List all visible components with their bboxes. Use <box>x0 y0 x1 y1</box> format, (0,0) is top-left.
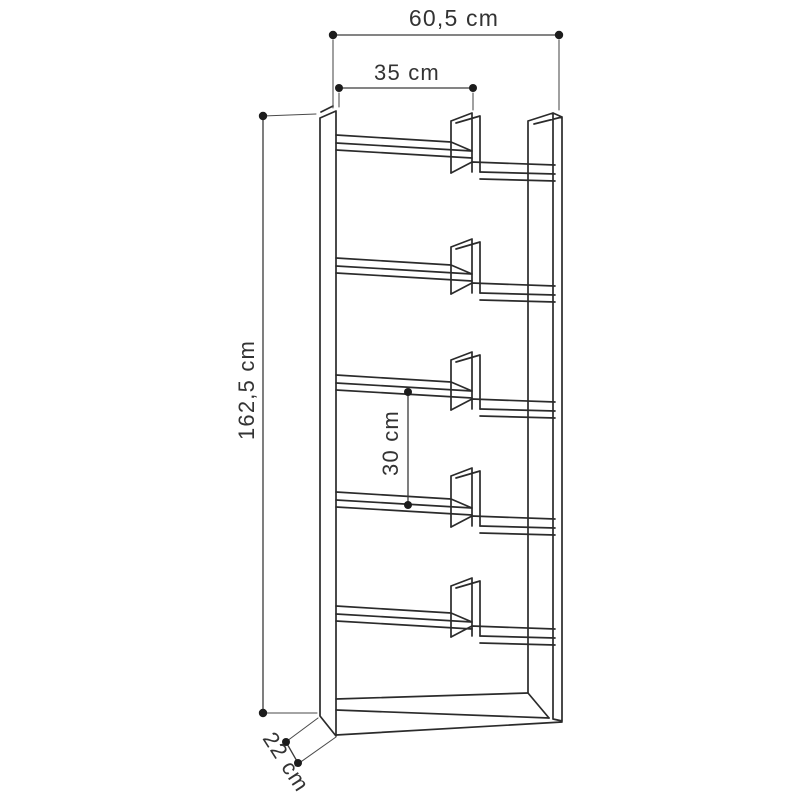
dimension-depth: 22 cm <box>258 718 336 796</box>
divider <box>451 352 480 410</box>
shelf-unit-3 <box>336 352 555 418</box>
dimension-label-shelf-spacing: 30 cm <box>378 410 403 476</box>
shelf-unit-1 <box>336 113 555 181</box>
dimension-end-dot <box>555 31 563 39</box>
extension-lines <box>333 40 559 110</box>
dimension-label-overall-width: 60,5 cm <box>409 5 499 31</box>
right-shelf <box>451 162 555 181</box>
divider <box>451 468 480 527</box>
extension-lines <box>339 93 473 110</box>
dimension-label-depth: 22 cm <box>258 727 315 796</box>
dimension-label-shelf-width: 35 cm <box>374 60 440 85</box>
dimension-overall-width: 60,5 cm <box>329 5 563 110</box>
dimension-end-dot <box>404 501 412 509</box>
dimension-end-dot <box>404 388 412 396</box>
dimension-overall-height: 162,5 cm <box>234 112 317 717</box>
shelf-unit-2 <box>336 239 555 302</box>
dimension-end-dot <box>329 31 337 39</box>
diagram-canvas: 60,5 cm 35 cm 162,5 cm 30 cm 22 cm <box>0 0 800 800</box>
dimension-shelf-width: 35 cm <box>335 60 477 110</box>
right-shelf <box>451 626 555 645</box>
dimension-shelf-spacing: 30 cm <box>378 388 412 509</box>
base-panel <box>336 693 562 735</box>
right-shelf <box>451 283 555 302</box>
left-side-panel-outline <box>320 106 336 736</box>
bookcase-drawing <box>320 106 562 736</box>
right-shelf <box>451 399 555 418</box>
base-panel-outline <box>336 693 562 735</box>
extension-lines <box>263 114 317 713</box>
dimension-end-dot <box>469 84 477 92</box>
dimension-end-dot <box>259 709 267 717</box>
dimension-end-dot <box>259 112 267 120</box>
dimension-end-dot <box>335 84 343 92</box>
shelf-unit-5 <box>336 578 555 645</box>
right-shelf <box>451 516 555 535</box>
left-side-panel <box>320 106 336 736</box>
shelf-unit-4 <box>336 468 555 535</box>
dimension-label-overall-height: 162,5 cm <box>234 340 259 440</box>
